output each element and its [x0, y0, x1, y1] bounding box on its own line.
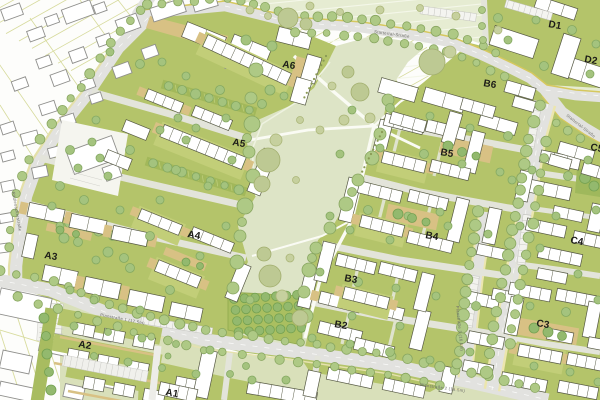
svg-text:C3: C3	[535, 318, 550, 331]
svg-text:A5: A5	[231, 137, 246, 150]
svg-text:A2: A2	[77, 339, 92, 352]
svg-text:C4: C4	[569, 235, 584, 248]
svg-text:A3: A3	[43, 250, 58, 263]
svg-text:A1: A1	[164, 387, 179, 400]
svg-text:B6: B6	[482, 78, 497, 91]
svg-text:B3: B3	[343, 273, 358, 286]
svg-text:B5: B5	[439, 147, 454, 160]
svg-text:B4: B4	[424, 230, 439, 243]
svg-text:D2: D2	[583, 54, 598, 67]
svg-text:A6: A6	[281, 59, 296, 72]
svg-text:A4: A4	[186, 229, 201, 242]
svg-text:B2: B2	[333, 319, 348, 332]
svg-text:D1: D1	[547, 19, 562, 32]
